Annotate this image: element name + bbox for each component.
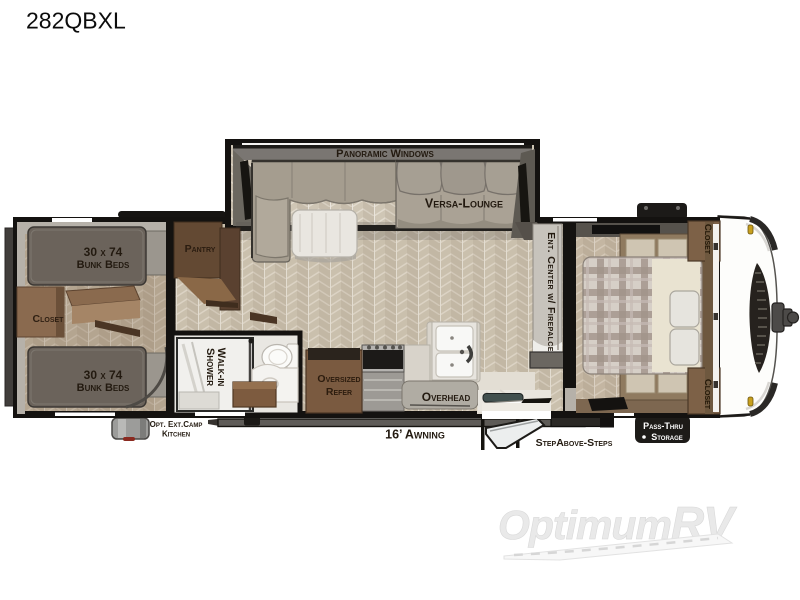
svg-text:StepAbove-Steps: StepAbove-Steps — [536, 437, 613, 449]
svg-text:Closet: Closet — [33, 313, 65, 325]
svg-text:Panoramic Windows: Panoramic Windows — [336, 148, 434, 160]
svg-text:Oversized: Oversized — [317, 373, 360, 385]
svg-text:Storage: Storage — [651, 432, 683, 442]
svg-text:Kitchen: Kitchen — [162, 430, 190, 439]
svg-text:30 x 74: 30 x 74 — [84, 245, 123, 259]
svg-text:30 x 74: 30 x 74 — [84, 368, 123, 382]
svg-text:Closet: Closet — [702, 379, 713, 410]
svg-text:Closet: Closet — [702, 224, 713, 255]
svg-text:Ent. Center w/ Firepalce: Ent. Center w/ Firepalce — [545, 232, 557, 352]
svg-text:Overhead: Overhead — [422, 390, 471, 404]
svg-text:Bunk Beds: Bunk Beds — [77, 259, 130, 271]
svg-text:Bunk Beds: Bunk Beds — [77, 382, 130, 394]
svg-text:Refer: Refer — [326, 386, 352, 398]
svg-text:Opt. Ext.Camp: Opt. Ext.Camp — [150, 420, 203, 429]
svg-text:Versa-Lounge: Versa-Lounge — [425, 197, 503, 211]
svg-text:Shower: Shower — [204, 348, 216, 386]
svg-text:282QBXL: 282QBXL — [26, 8, 126, 34]
svg-text:16’ Awning: 16’ Awning — [385, 428, 445, 442]
svg-text:Pantry: Pantry — [185, 243, 216, 255]
svg-text:Pass-Thru: Pass-Thru — [643, 421, 683, 431]
